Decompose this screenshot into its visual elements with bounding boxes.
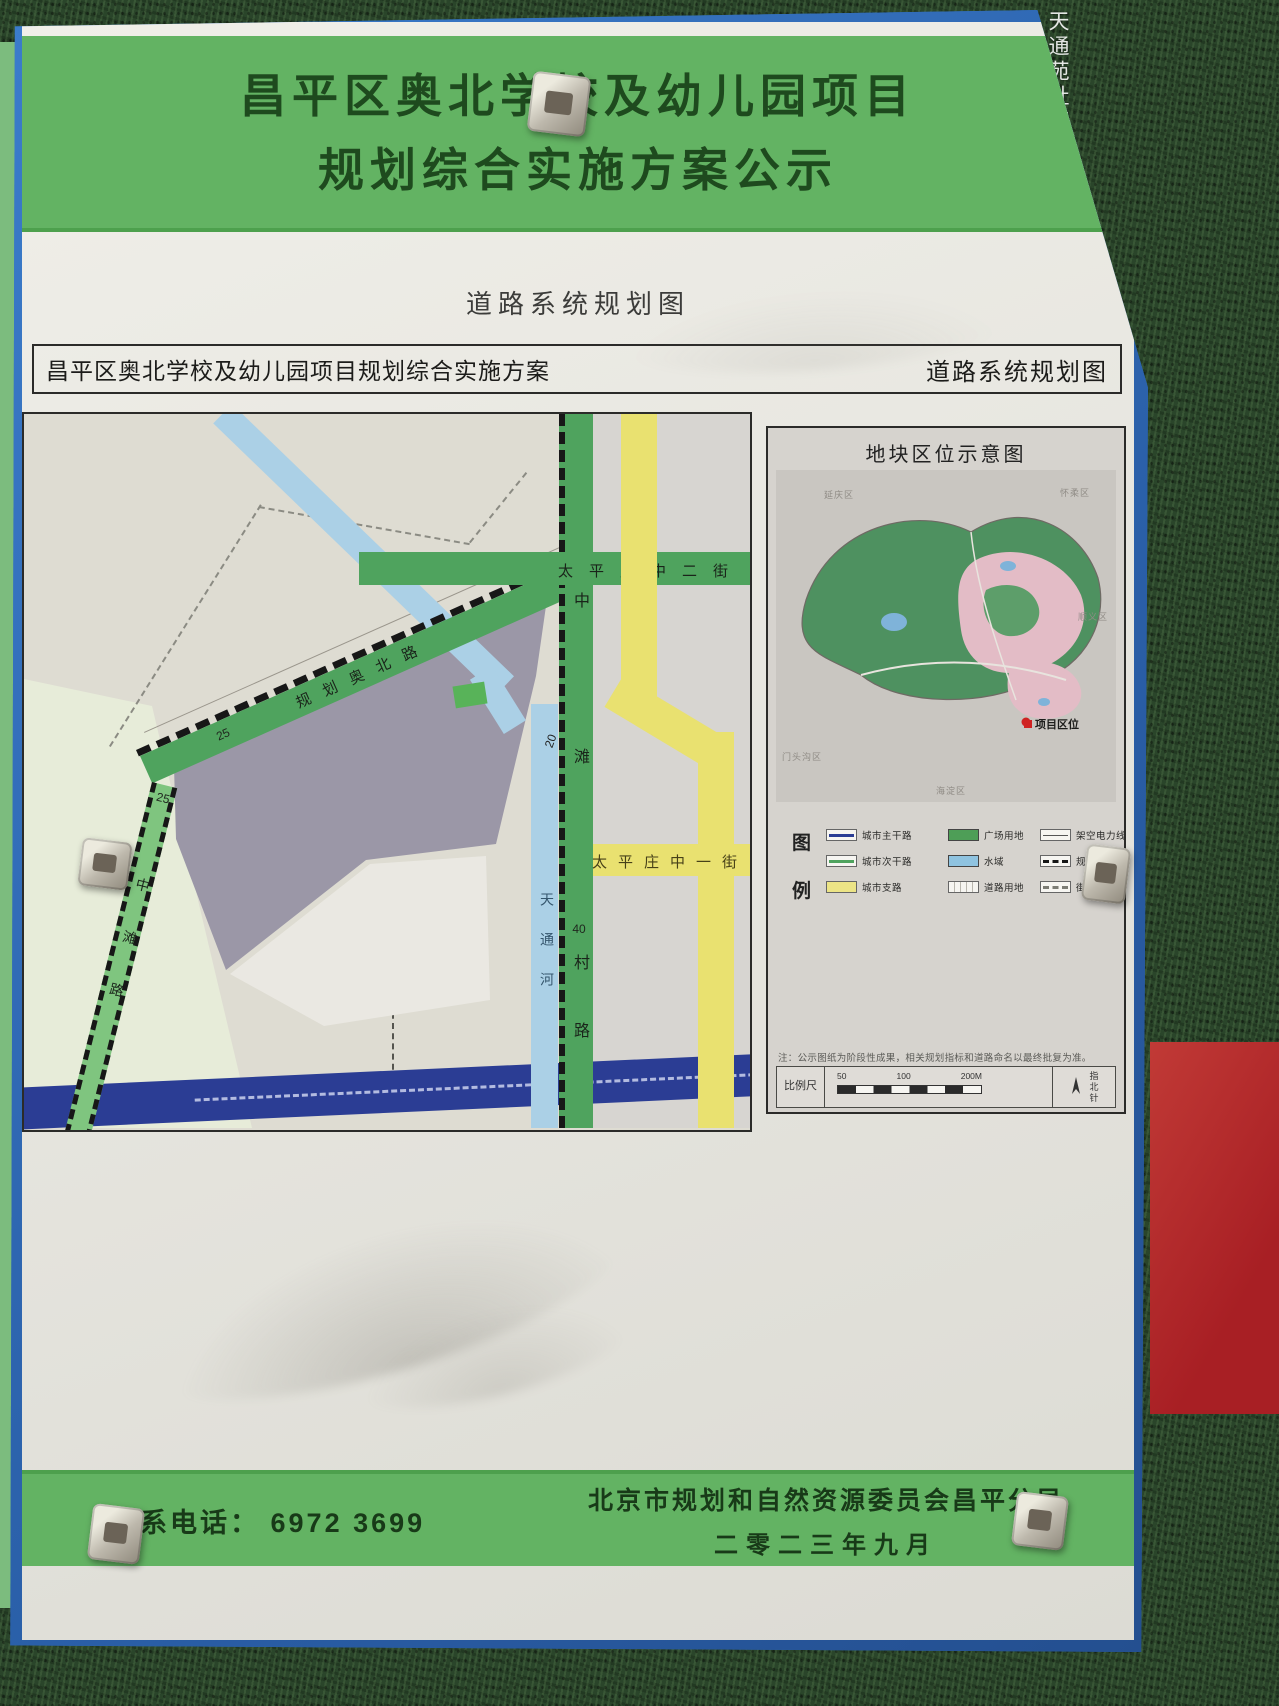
road-label-zhongtan-village-top: 中滩 — [567, 592, 591, 904]
inset-map-graphic — [776, 470, 1116, 802]
district-label: 门头沟区 — [782, 750, 822, 763]
road-zhongtan-village: 中滩 40 村路 — [559, 414, 593, 1128]
issuing-authority: 北京市规划和自然资源委员会昌平分局 — [588, 1481, 1064, 1517]
red-square-icon — [1024, 720, 1032, 728]
legend-item: 城市支路 — [826, 880, 902, 894]
swatch-block-boundary — [1040, 881, 1071, 893]
scale-label: 比例尺 — [777, 1067, 825, 1107]
legend-title-bottom: 例 — [792, 876, 811, 903]
compass-label: 指北针 — [1088, 1071, 1101, 1104]
block-boundary-dash — [469, 472, 527, 543]
legend-item: 城市主干路 — [826, 828, 912, 842]
district-inset-map: 延庆区 怀柔区 顺义区 门头沟区 海淀区 项目区位 — [776, 470, 1116, 802]
scale-tick: 100 — [897, 1071, 911, 1081]
scale-tick: 50 — [837, 1071, 846, 1081]
road-label-taipingzhuang-1st: 太平庄中一街 — [592, 851, 748, 872]
district-label: 延庆区 — [824, 488, 854, 501]
board-title-line2: 规划综合实施方案公示 — [22, 134, 1134, 200]
road-taipingzhuang-2nd: 太平庄中二街 — [359, 552, 750, 585]
legend-title-top: 图 — [792, 828, 811, 855]
board-inner-panel: 昌平区奥北学校及幼儿园项目 规划综合实施方案公示 道路系统规划图 昌平区奥北学校… — [22, 22, 1134, 1640]
branch-road-south — [698, 732, 734, 1128]
swatch-road-land — [948, 881, 979, 893]
legend-item: 架空电力线 — [1040, 828, 1126, 842]
compass: 指北针 — [1052, 1067, 1115, 1107]
swatch-branch-road — [826, 881, 857, 893]
road-centerline — [195, 1072, 752, 1101]
metal-clip-bottom-left — [87, 1503, 145, 1565]
location-info-panel: 地块区位示意图 延庆区 怀柔区 顺义区 门 — [766, 426, 1126, 1114]
legend-item: 道路用地 — [948, 880, 1024, 894]
branch-road-north — [621, 414, 657, 706]
road-width-25: 25 — [214, 725, 232, 743]
scale-strip — [837, 1085, 982, 1094]
road-width-40: 40 — [572, 922, 585, 936]
district-label: 顺义区 — [1078, 610, 1108, 623]
project-location-marker: 项目区位 — [1024, 716, 1079, 732]
road-taipingzhuang-1st: 太平庄中一街 — [593, 844, 750, 876]
issue-date: 二零二三年九月 — [588, 1525, 1064, 1560]
issuer-block: 北京市规划和自然资源委员会昌平分局 二零二三年九月 — [588, 1481, 1064, 1560]
header-bar-right: 道路系统规划图 — [926, 352, 1108, 387]
scale-bar: 50 100 200M — [825, 1067, 1052, 1107]
disclaimer-note: 注：公示图纸为阶段性成果，相关规划指标和道路命名以最终批复为准。 — [778, 1050, 1092, 1064]
footer-band: 联系电话： 6972 3699 北京市规划和自然资源委员会昌平分局 二零二三年九… — [22, 1470, 1134, 1566]
legend: 图 例 城市主干路 城市次干路 城市支路 广场用地 水域 道路用地 架空电力线 … — [778, 824, 1118, 908]
north-arrow-icon — [1068, 1076, 1084, 1098]
swatch-secondary-road — [826, 855, 857, 867]
notice-board: 昌平区奥北学校及幼儿园项目 规划综合实施方案公示 道路系统规划图 昌平区奥北学校… — [8, 10, 1148, 1652]
contact-phone: 联系电话： 6972 3699 — [110, 1501, 425, 1540]
road-map-panel: 天通河 25 规划奥北路 中滩 40 村路 太平庄中二街 — [22, 412, 752, 1132]
header-bar: 昌平区奥北学校及幼儿园项目规划综合实施方案 道路系统规划图 — [32, 344, 1122, 394]
road-label-zhongtan-village-bottom: 村路 — [567, 954, 591, 1090]
metal-clip-right — [1081, 844, 1131, 905]
metal-clip-left — [77, 837, 132, 891]
district-label: 怀柔区 — [1060, 486, 1090, 499]
swatch-plan-boundary — [1040, 855, 1071, 867]
swatch-water — [948, 855, 979, 867]
swatch-main-road — [826, 829, 857, 841]
contact-number: 6972 3699 — [271, 1508, 426, 1538]
project-location-label: 项目区位 — [1035, 716, 1079, 732]
scale-bar-box: 比例尺 50 100 200M 指北针 — [776, 1066, 1116, 1108]
district-label: 海淀区 — [936, 784, 966, 797]
metal-clip-top — [527, 71, 592, 138]
legend-item: 广场用地 — [948, 828, 1024, 842]
metal-clip-bottom-right — [1011, 1491, 1069, 1551]
header-bar-left: 昌平区奥北学校及幼儿园项目规划综合实施方案 — [46, 352, 550, 386]
scale-tick: 200M — [961, 1071, 982, 1081]
river-lower: 天通河 — [531, 704, 558, 1128]
road-width-25b: 25 — [155, 790, 171, 807]
legend-item: 城市次干路 — [826, 854, 912, 868]
swatch-power-line — [1040, 829, 1071, 841]
adjacent-red-panel — [1150, 1042, 1279, 1414]
river-label: 天通河 — [537, 892, 557, 1012]
swatch-plaza-land — [948, 829, 979, 841]
legend-item: 水域 — [948, 854, 1004, 868]
inset-map-title: 地块区位示意图 — [768, 438, 1124, 467]
